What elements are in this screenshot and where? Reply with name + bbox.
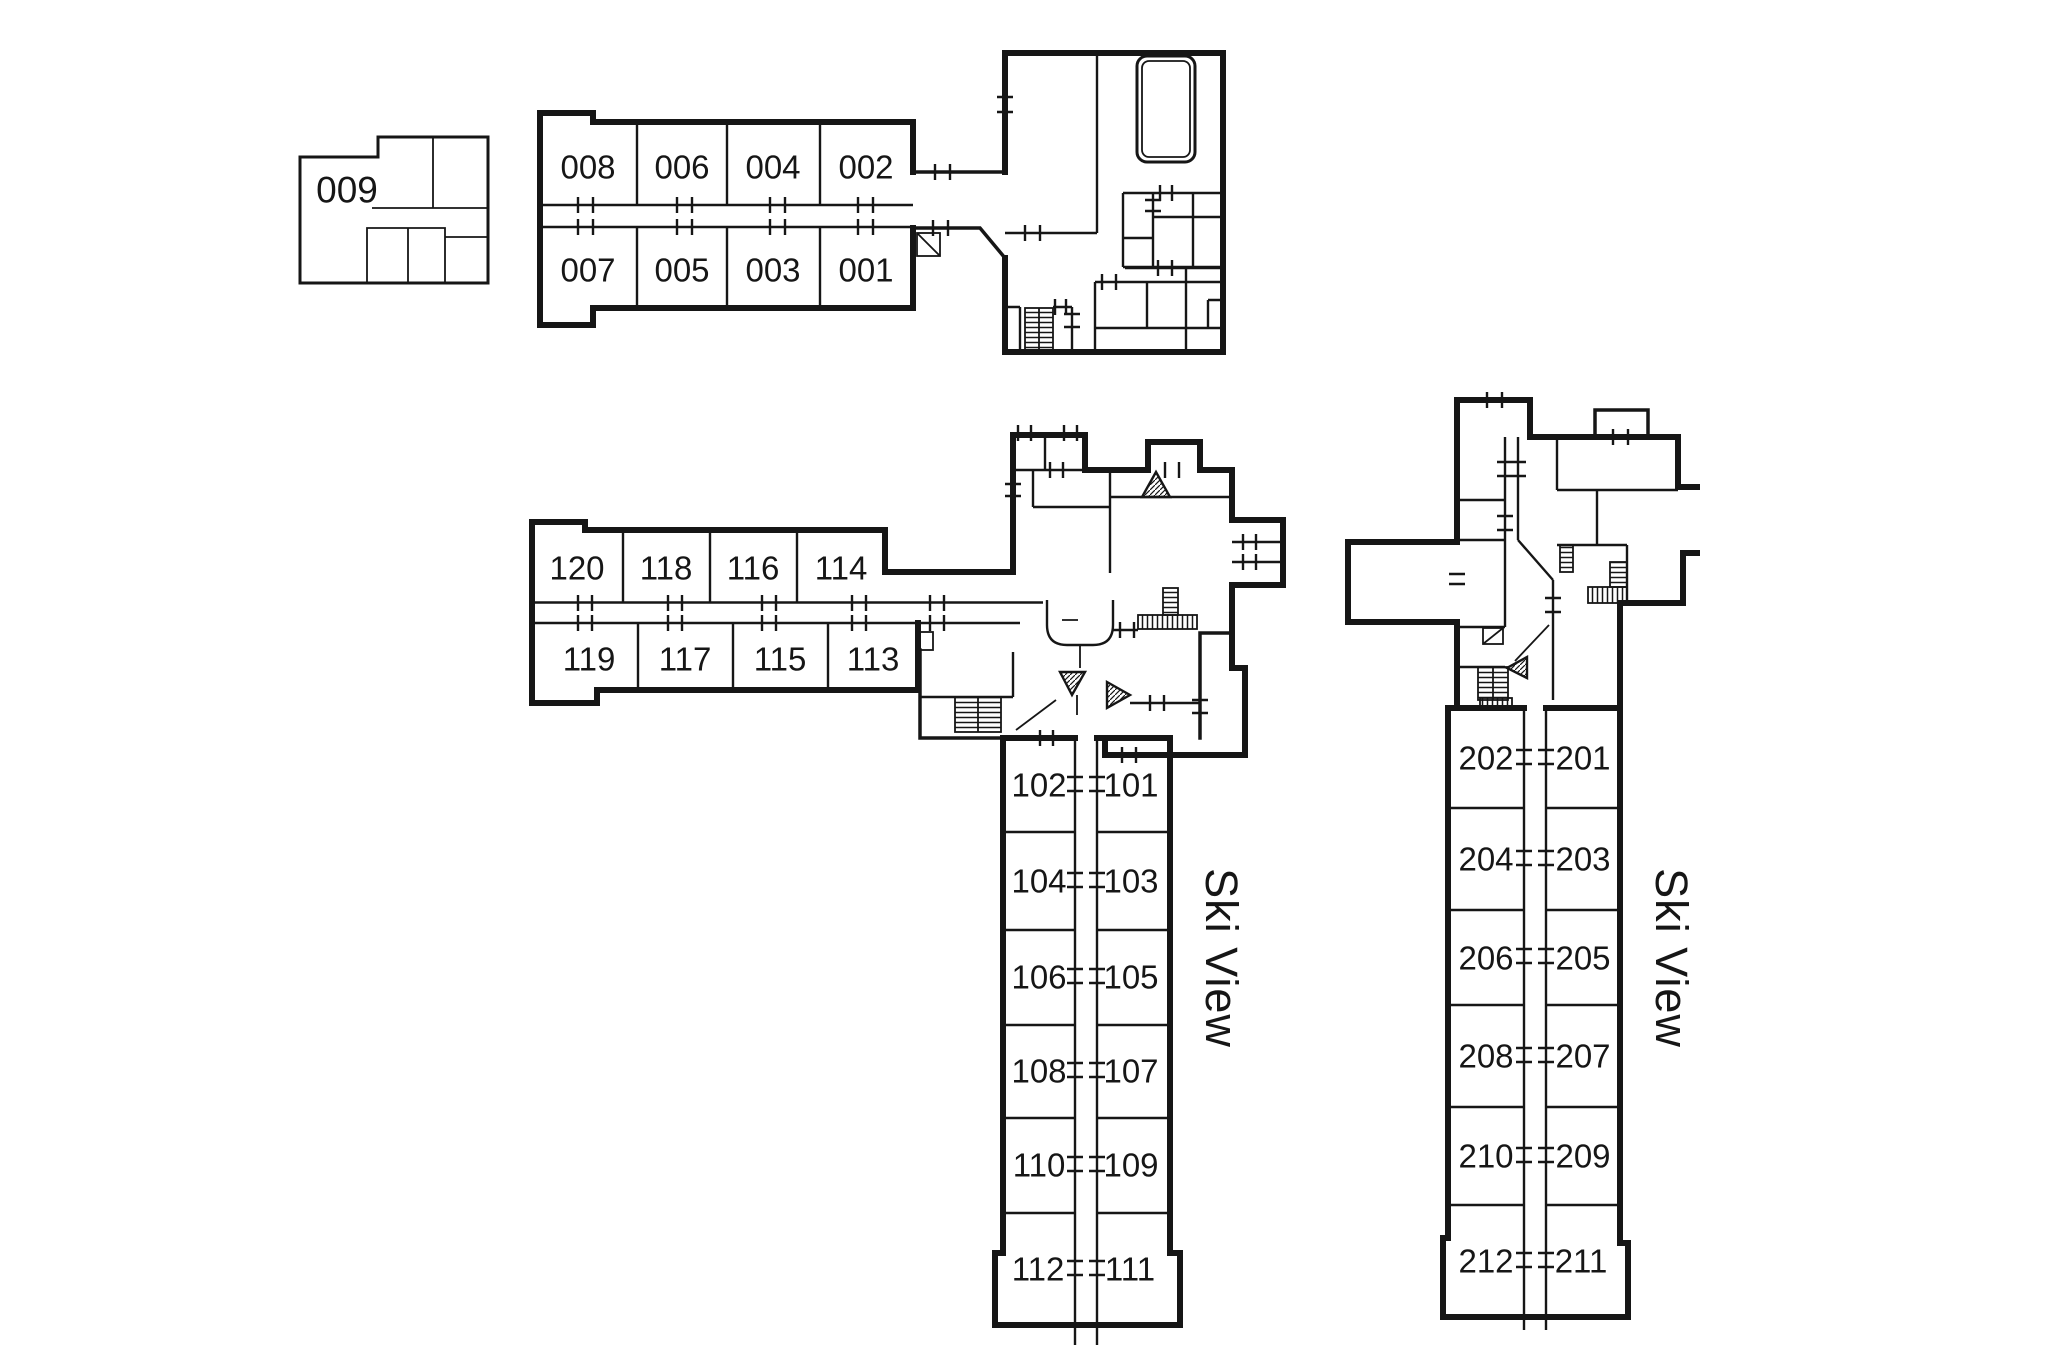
staircase	[1560, 545, 1627, 603]
room-label: 109	[1103, 1147, 1158, 1184]
clubhouse-building	[997, 53, 1223, 352]
room-label: 105	[1103, 959, 1158, 996]
upper-wing: 120 118 116 114 119 117 115 113	[532, 522, 1043, 703]
room-label: 114	[815, 550, 868, 587]
room-label: 001	[838, 252, 893, 289]
stair-direction-line	[1016, 700, 1056, 730]
tower-100s: 102 104 106 108 110 112 101 103 105 107 …	[995, 738, 1180, 1345]
door-ticks	[997, 97, 1172, 327]
room-label: 111	[1105, 1251, 1155, 1288]
room-label: 102	[1011, 767, 1066, 804]
tower-200s-outer-walls	[1443, 690, 1628, 1317]
tower-100s-corridor-walls	[1075, 738, 1097, 1345]
unit-009-partitions	[367, 137, 488, 283]
floor-plan-drawing: 009 008 006 004 002 007 005 003 001	[0, 0, 2048, 1365]
exit-triangle-right	[1107, 682, 1130, 708]
floor-plan-page: 009 008 006 004 002 007 005 003 001	[0, 0, 2048, 1365]
ground-wing-connector-walls	[913, 172, 1005, 258]
stair-treads	[1610, 562, 1627, 587]
room-label: 108	[1011, 1053, 1066, 1090]
unit-009: 009	[300, 137, 488, 283]
ground-wing: 008 006 004 002 007 005 003 001	[540, 113, 1005, 325]
room-label: 007	[560, 252, 615, 289]
room-label: 008	[560, 149, 615, 186]
washroom-door-swing	[1483, 628, 1503, 644]
east-lodge	[1348, 392, 1697, 708]
room-label: 210	[1458, 1138, 1513, 1175]
door-ticks	[1516, 750, 1554, 1267]
stair-direction-line	[1515, 625, 1549, 661]
stair-treads	[1560, 545, 1573, 572]
room-label: 208	[1458, 1038, 1513, 1075]
closet	[920, 632, 933, 650]
room-label: 211	[1555, 1243, 1608, 1280]
room-label: 004	[745, 149, 800, 186]
stair-treads	[1138, 615, 1197, 629]
room-label: 112	[1012, 1251, 1065, 1288]
pool-inner	[1142, 61, 1190, 157]
room-label: 203	[1555, 841, 1610, 878]
stair-treads	[1163, 588, 1178, 615]
tower-100s-outer-walls	[995, 738, 1180, 1325]
entry-closet-door-swing	[917, 233, 940, 256]
room-label: 002	[838, 149, 893, 186]
room-label: 005	[654, 252, 709, 289]
stair-treads	[1588, 587, 1627, 603]
upper-wing-corridor-walls	[532, 603, 1043, 624]
stair-treads	[1480, 698, 1512, 706]
room-label: 118	[640, 550, 693, 587]
ski-view-label-west: Ski View	[1196, 868, 1247, 1048]
curved-corridor	[1047, 600, 1113, 715]
room-label: 116	[727, 550, 780, 587]
room-label: 120	[549, 550, 604, 587]
door-ticks	[578, 595, 944, 631]
staircase	[1025, 308, 1053, 351]
main-lodge	[885, 425, 1283, 763]
door-ticks	[1449, 392, 1628, 612]
ski-view-label-east: Ski View	[1646, 868, 1697, 1048]
room-label: 119	[563, 641, 616, 678]
room-label: 101	[1103, 767, 1158, 804]
room-label: 006	[654, 149, 709, 186]
room-label: 117	[659, 641, 712, 678]
room-label: 107	[1103, 1053, 1158, 1090]
staircase	[1138, 588, 1197, 629]
room-label: 204	[1458, 841, 1513, 878]
room-label: 003	[745, 252, 800, 289]
room-label: 009	[316, 170, 378, 211]
pool-outer	[1137, 56, 1195, 162]
room-label: 207	[1555, 1038, 1610, 1075]
room-label: 212	[1458, 1243, 1513, 1280]
tower-200s: 202 204 206 208 210 212 201 203 205 207 …	[1443, 690, 1628, 1330]
door-ticks	[1005, 425, 1256, 763]
room-label: 209	[1555, 1138, 1610, 1175]
room-label: 113	[847, 641, 900, 678]
tower-200s-corridor-walls	[1524, 708, 1546, 1330]
room-label: 201	[1555, 740, 1610, 777]
room-label: 103	[1103, 863, 1158, 900]
room-label: 205	[1555, 940, 1610, 977]
exit-triangle-down	[1060, 672, 1085, 695]
room-label: 206	[1458, 940, 1513, 977]
staircase	[1478, 625, 1549, 700]
staircase	[955, 697, 1056, 732]
room-label: 106	[1011, 959, 1066, 996]
room-label: 110	[1013, 1147, 1066, 1184]
room-label: 104	[1011, 863, 1066, 900]
rooftop-vestibule	[1595, 410, 1648, 437]
room-label: 202	[1458, 740, 1513, 777]
corridor-curve-walls	[1047, 600, 1113, 645]
room-label: 115	[754, 641, 807, 678]
corridor-door-mark	[1062, 620, 1080, 715]
